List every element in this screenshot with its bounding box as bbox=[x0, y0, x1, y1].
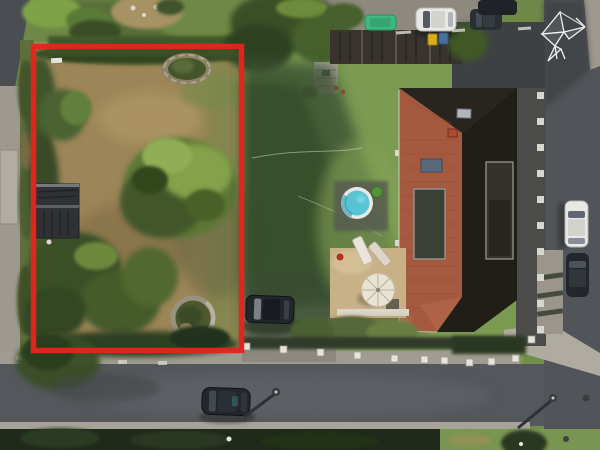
garden-gate bbox=[51, 58, 62, 64]
windshield bbox=[569, 261, 586, 268]
waste-bin-blue bbox=[439, 33, 448, 44]
windshield bbox=[254, 298, 262, 319]
windshield bbox=[423, 11, 430, 28]
roof-window-west bbox=[414, 189, 445, 259]
chimney bbox=[448, 129, 457, 137]
parasol bbox=[362, 274, 395, 307]
pool-area bbox=[334, 181, 388, 231]
street-parked-dark-car bbox=[202, 387, 251, 416]
aerial-photo-stage bbox=[0, 0, 600, 450]
aerial-photo bbox=[0, 0, 600, 450]
terrace bbox=[322, 236, 418, 344]
dark-car-corner bbox=[478, 0, 517, 15]
manhole bbox=[583, 395, 590, 402]
garden-stone bbox=[131, 6, 136, 11]
green-car bbox=[365, 15, 396, 30]
tree-shadow-on-street bbox=[50, 374, 160, 402]
garden-shed bbox=[36, 184, 79, 245]
windshield bbox=[209, 390, 217, 411]
parked-dark-car bbox=[566, 253, 589, 297]
skylight bbox=[457, 109, 471, 118]
waste-bin-yellow bbox=[428, 34, 437, 45]
garden-ball-bush bbox=[372, 187, 383, 198]
parked-white-car bbox=[565, 201, 588, 247]
shed-roof-ridge bbox=[36, 205, 79, 208]
windshield bbox=[568, 211, 585, 218]
white-garden-wall bbox=[337, 309, 409, 316]
concrete-pad bbox=[0, 150, 18, 224]
hose-reel bbox=[337, 254, 344, 261]
white-car-top bbox=[415, 8, 459, 38]
solar-panel bbox=[421, 159, 442, 172]
house-roof bbox=[395, 88, 517, 332]
driveway-dark-car bbox=[246, 295, 295, 324]
